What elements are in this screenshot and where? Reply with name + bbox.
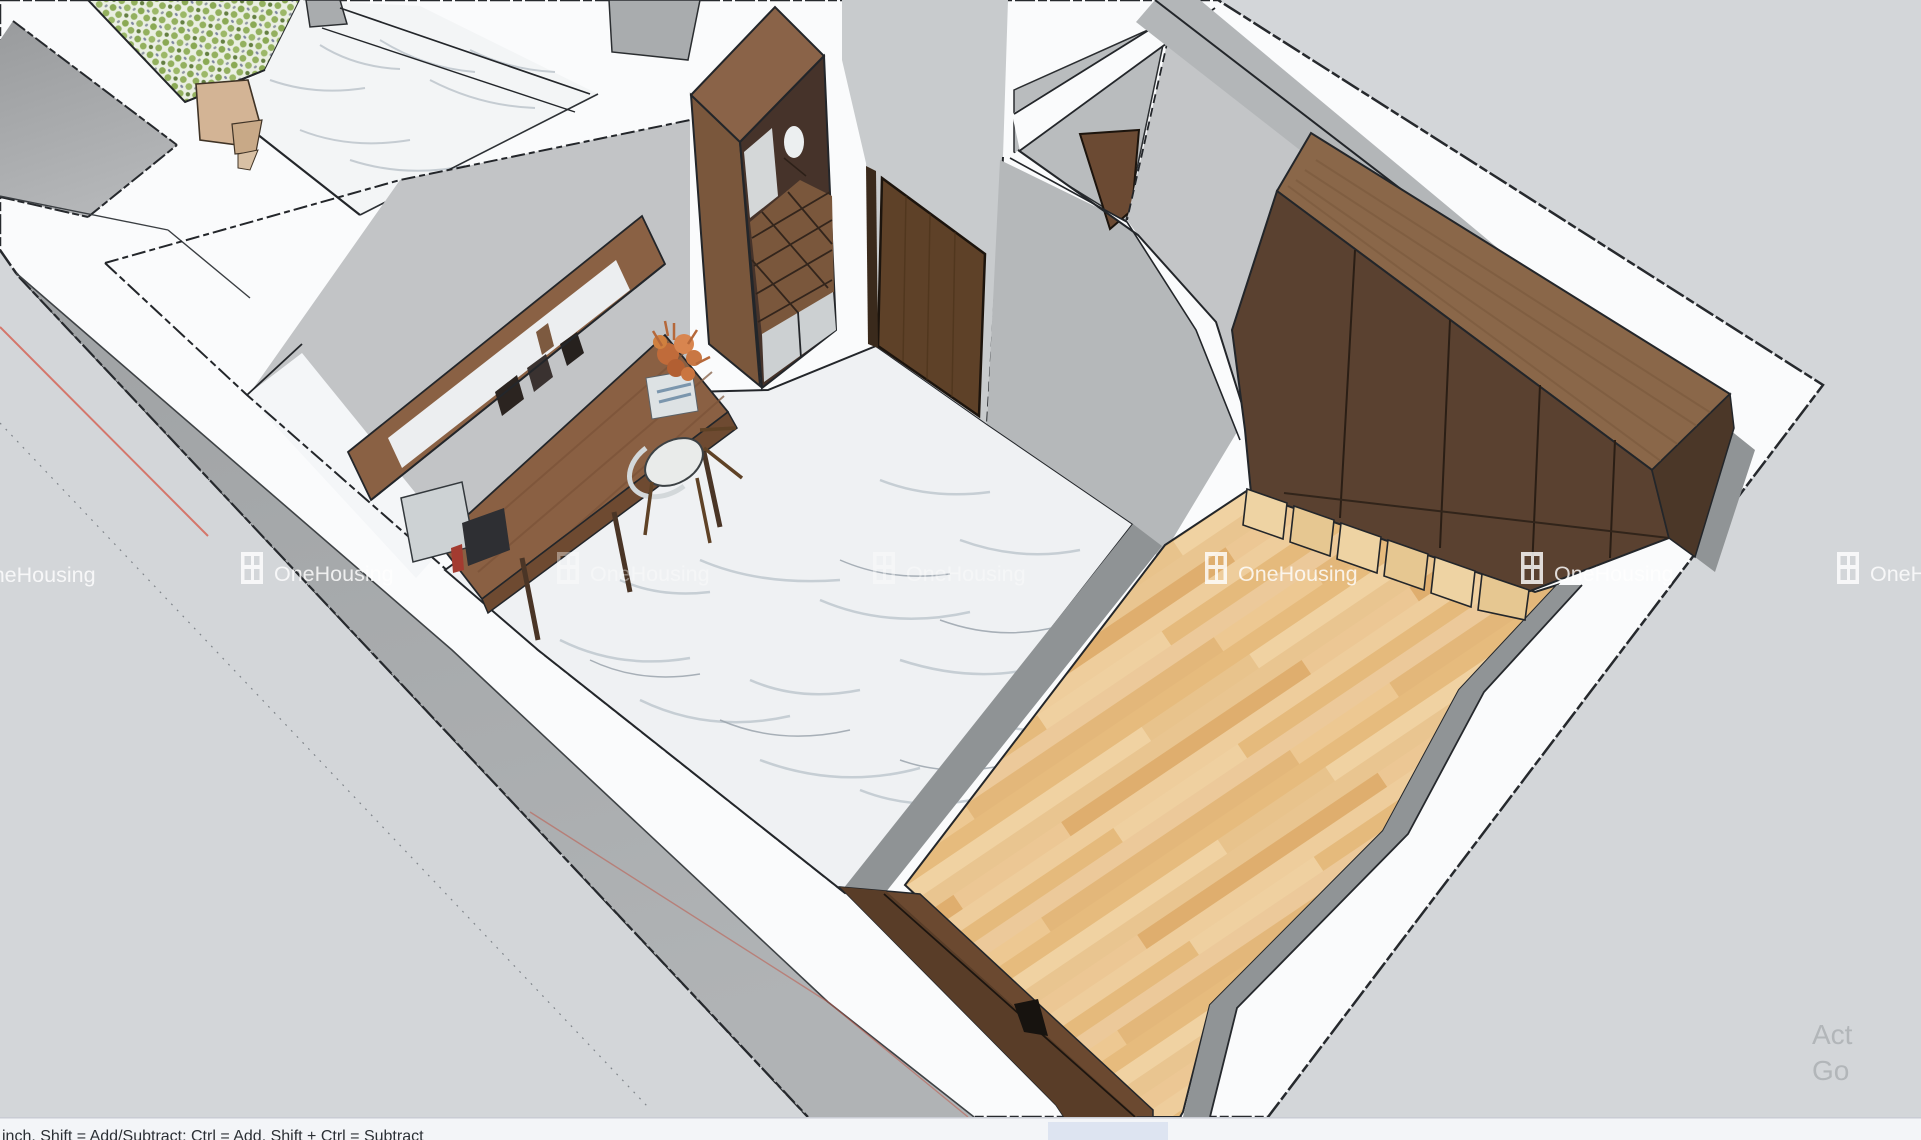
svg-text:OneHousing: OneHousing bbox=[590, 562, 710, 586]
svg-text:OneHousing: OneHousing bbox=[0, 563, 96, 587]
svg-text:inch. Shift = Add/Subtract; Ct: inch. Shift = Add/Subtract; Ctrl = Add. … bbox=[2, 1128, 424, 1140]
svg-text:OneHousing: OneHousing bbox=[1238, 562, 1358, 586]
svg-text:OneHousing: OneHousing bbox=[1870, 562, 1921, 586]
svg-text:Go: Go bbox=[1812, 1055, 1849, 1086]
svg-text:OneHousing: OneHousing bbox=[1554, 562, 1674, 586]
svg-text:Act: Act bbox=[1812, 1019, 1853, 1050]
svg-text:OneHousing: OneHousing bbox=[274, 562, 394, 586]
svg-text:OneHousing: OneHousing bbox=[906, 562, 1026, 586]
